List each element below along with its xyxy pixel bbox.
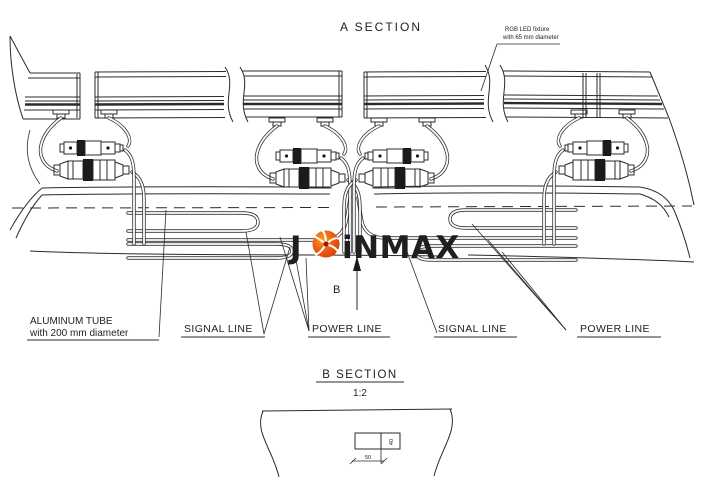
section-b-scale: 1:2	[353, 388, 367, 399]
connector-assembly-right	[544, 110, 647, 244]
detail-dim-width: 50	[365, 455, 371, 461]
aluminum-label-line2: with 200 mm diameter	[29, 328, 129, 339]
signal-line-label-left: SIGNAL LINE	[184, 323, 253, 335]
detail-dim-height: 40	[389, 439, 395, 445]
power-line-label-left: POWER LINE	[312, 323, 382, 335]
logo-text-j: J	[288, 230, 302, 266]
engineering-drawing-page: A SECTION RGB LED fixture with 65 mm dia…	[0, 0, 705, 485]
logo-text-inmax: iNMAX	[342, 230, 460, 266]
aluminum-label-line1: ALUMINUM TUBE	[30, 316, 113, 327]
led-note-line2: with 65 mm diameter	[502, 35, 559, 41]
joinmax-logo: J iNMAX	[288, 230, 460, 266]
signal-line-label-right: SIGNAL LINE	[438, 323, 507, 335]
section-a-drawing: A SECTION RGB LED fixture with 65 mm dia…	[0, 0, 705, 485]
led-note-line1: RGB LED fixture	[505, 27, 550, 33]
section-a-title: A SECTION	[340, 20, 422, 34]
sunburst-icon	[312, 230, 340, 258]
section-b-title: B SECTION	[322, 369, 397, 381]
b-marker: B	[333, 284, 340, 296]
connector-assembly-left	[41, 110, 144, 244]
b-section-detail	[261, 409, 453, 477]
power-line-label-right: POWER LINE	[580, 323, 650, 335]
